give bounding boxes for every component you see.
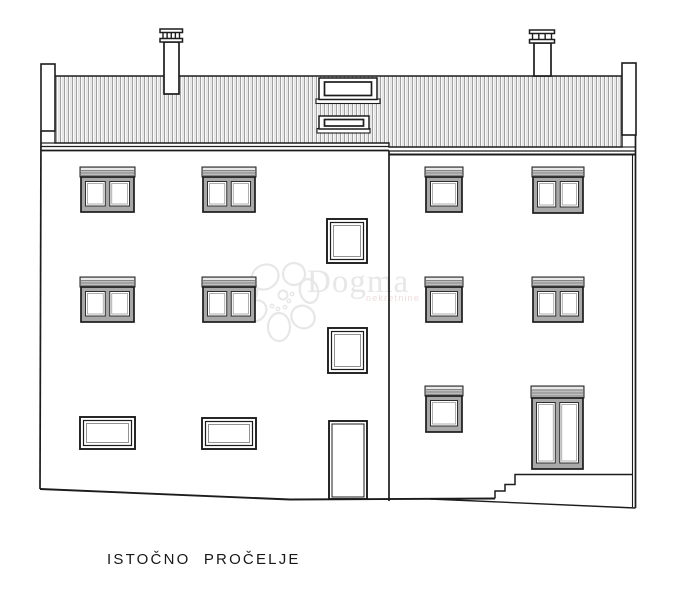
elevation-drawing: Dogmanekretnine — [0, 0, 681, 598]
window-shutter-double — [202, 167, 256, 212]
drawing-title: ISTOČNO PROČELJE — [107, 551, 301, 568]
chimney-left — [160, 29, 183, 94]
watermark-flower-icon — [283, 305, 286, 308]
basement-window — [80, 417, 135, 449]
elevation-sheet: Dogmanekretnine ISTOČNO PROČELJE — [0, 0, 681, 598]
entry-door — [329, 421, 367, 499]
watermark-flower-icon — [270, 304, 273, 307]
window-shutter-double — [80, 167, 135, 212]
terrain-slope — [430, 499, 636, 508]
window-shutter-double — [532, 277, 584, 322]
window-shutter-single — [425, 277, 463, 322]
entrance-steps — [495, 475, 633, 499]
window-shutter-double — [202, 277, 256, 322]
left-parapet — [41, 64, 55, 131]
basement-window — [202, 418, 256, 449]
window-shutter-single — [425, 167, 463, 212]
stairwell-window — [327, 219, 367, 263]
watermark-flower-icon — [287, 301, 319, 333]
chimney-right — [530, 30, 555, 76]
watermark-flower-icon — [268, 313, 290, 341]
right-parapet — [622, 63, 636, 135]
roof-skylight — [316, 78, 380, 104]
ground-line — [40, 489, 495, 500]
watermark-flower-icon — [290, 292, 293, 295]
watermark-subtext: nekretnine — [366, 293, 420, 303]
roof-skylight — [317, 116, 370, 133]
watermark-flower-icon — [276, 307, 279, 310]
window-shutter-double — [80, 277, 135, 322]
window-shutter-single — [425, 386, 463, 432]
stairwell-window — [328, 328, 367, 373]
watermark-flower-icon — [279, 291, 288, 300]
balcony-door — [531, 386, 584, 469]
watermark-flower-icon — [287, 299, 290, 302]
left-wall — [40, 131, 41, 489]
window-shutter-double — [532, 167, 584, 213]
